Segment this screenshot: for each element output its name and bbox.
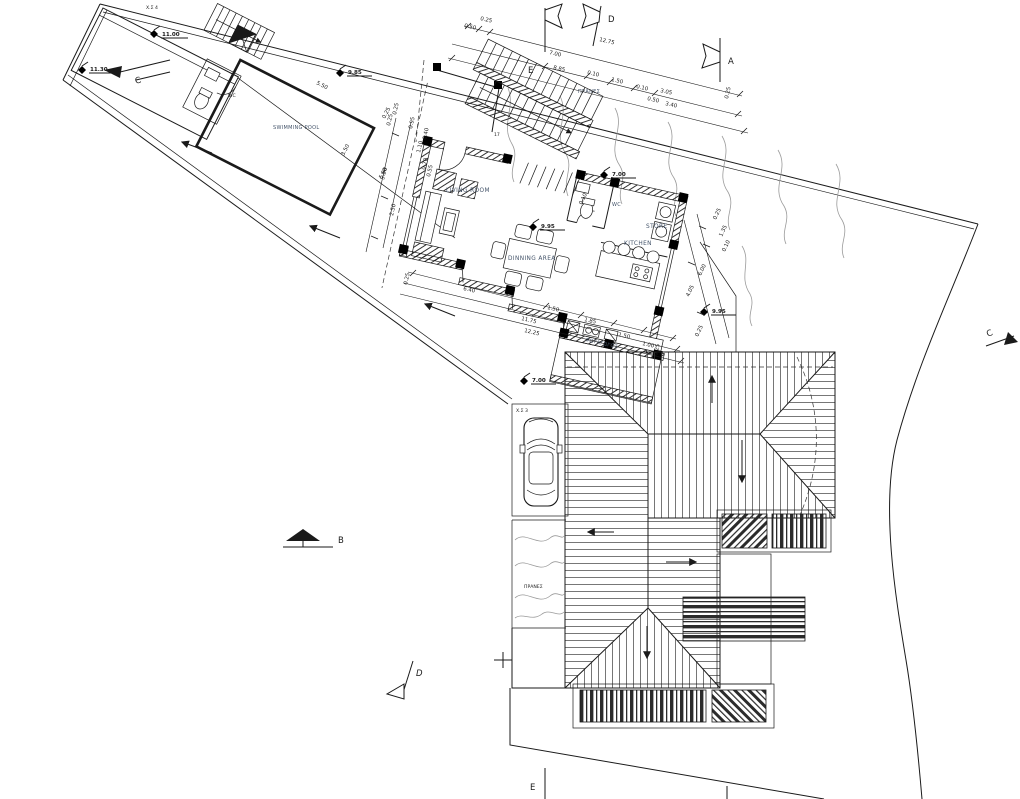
pergola-slats-3 xyxy=(580,690,706,722)
dim-top-2: 7.00 xyxy=(549,50,563,59)
dim-left-2: 2.50 xyxy=(389,203,398,217)
dim-top-7: 0.10 xyxy=(636,84,650,93)
elevation-floor: 9.95 xyxy=(529,219,565,231)
section-markers: E D A C B D xyxy=(104,4,1018,799)
dim-right-5: 0.25 xyxy=(694,324,705,337)
dim-top-6: 1.50 xyxy=(611,77,625,86)
dining-area-label: DINNING AREA xyxy=(508,256,556,262)
svg-text:9.95: 9.95 xyxy=(712,309,726,315)
svg-text:E: E xyxy=(528,66,533,76)
svg-text:C: C xyxy=(134,75,143,86)
elevation-markers: 11.00 11.30 9.85 9.95 9.95 7.00 xyxy=(78,26,736,385)
living-room-label: LIVING ROOM xyxy=(446,188,490,194)
dim-top-1: 0.50 xyxy=(464,23,478,32)
wc-label: WC xyxy=(612,202,621,208)
svg-text:D: D xyxy=(608,15,615,25)
entry-steps xyxy=(520,162,581,196)
dimension-labels: 0.25 0.50 7.00 12.75 8.85 0.10 1.50 0.10… xyxy=(315,16,733,356)
dim-right-4: 4.05 xyxy=(685,284,696,297)
dim-right-1: 1.35 xyxy=(718,224,729,237)
slope-waves-top xyxy=(507,88,844,326)
section-b-left: B xyxy=(283,529,344,547)
svg-text:D: D xyxy=(416,669,423,679)
svg-text:9.95: 9.95 xyxy=(541,224,555,230)
svg-text:A: A xyxy=(728,57,734,67)
floor-plan-page: Χ.Σ 4 SWIMMING POOL WC ΠΡΑΝΕΣ xyxy=(0,0,1020,799)
dim-top-11: 0.25 xyxy=(724,86,733,99)
dim-top-8: 0.50 xyxy=(647,96,661,105)
elevation-stairs-mid: 7.00 xyxy=(600,167,636,179)
parking-space-4-label: Χ.Σ 4 xyxy=(146,5,158,11)
site-plan-drawing: Χ.Σ 4 SWIMMING POOL WC ΠΡΑΝΕΣ xyxy=(0,0,1020,799)
car-top-view xyxy=(520,418,562,506)
dim-top-0: 0.25 xyxy=(480,16,493,25)
dim-top-9: 3.05 xyxy=(660,88,673,97)
pergola-diagonal-2 xyxy=(712,690,766,722)
svg-text:7.00: 7.00 xyxy=(612,172,626,178)
pergola-slats-1 xyxy=(772,514,826,548)
slope-side xyxy=(512,520,566,628)
driveway-arrows xyxy=(182,142,455,316)
section-a-right: A xyxy=(702,38,734,82)
svg-text:C: C xyxy=(985,328,995,340)
dim-left-3: 0.95 xyxy=(408,116,417,129)
dim-top-5: 0.10 xyxy=(587,70,601,79)
dim-left-7: 0.55 xyxy=(426,164,435,177)
svg-text:B: B xyxy=(338,536,344,546)
swimming-pool-label: SWIMMING POOL xyxy=(273,125,319,131)
kitchen-label: KITCHEN xyxy=(624,241,652,247)
pergola-slats-2 xyxy=(683,597,805,641)
elevation-court: 9.95 xyxy=(700,304,736,316)
dim-misc-1: 0.25 xyxy=(392,102,401,115)
dim-right-2: 0.10 xyxy=(721,239,732,253)
dim-pool-3: 5.50 xyxy=(378,166,389,180)
svg-text:9.85: 9.85 xyxy=(348,70,362,76)
carport xyxy=(512,404,568,516)
dim-right-3: 6.00 xyxy=(697,263,708,277)
dim-bottom-3: 12.25 xyxy=(524,328,540,337)
dim-top-3: 12.75 xyxy=(599,37,615,46)
dim-pool-0: 5.50 xyxy=(315,80,329,91)
court-step xyxy=(494,628,565,688)
court-edge xyxy=(700,242,736,352)
parking-space-3-label: Χ.Σ 3 xyxy=(516,408,528,414)
slope-side-label: ΠΡΑΝΕΣ xyxy=(524,584,543,590)
section-e-bottom: E xyxy=(530,768,545,799)
dim-top-10: 3.40 xyxy=(665,101,679,110)
dim-pool-1: 3.50 xyxy=(340,143,351,157)
dim-bottom-0: 0.25 xyxy=(403,272,412,285)
store-label: STORE xyxy=(646,224,667,230)
section-c-left: C xyxy=(104,60,170,87)
section-c-right: C xyxy=(985,328,1018,346)
upper-terrace-block xyxy=(66,0,392,215)
dim-right-0: 0.25 xyxy=(712,207,723,220)
pergola-diagonal-1 xyxy=(722,514,767,548)
section-d-bottom: D xyxy=(387,661,423,699)
swimming-pool xyxy=(196,60,374,215)
svg-text:11.00: 11.00 xyxy=(162,32,180,38)
stair-count-label: 17 xyxy=(494,132,500,138)
svg-text:E: E xyxy=(530,783,535,793)
pool-wc-label: WC xyxy=(228,93,236,99)
svg-text:7.00: 7.00 xyxy=(532,378,546,384)
